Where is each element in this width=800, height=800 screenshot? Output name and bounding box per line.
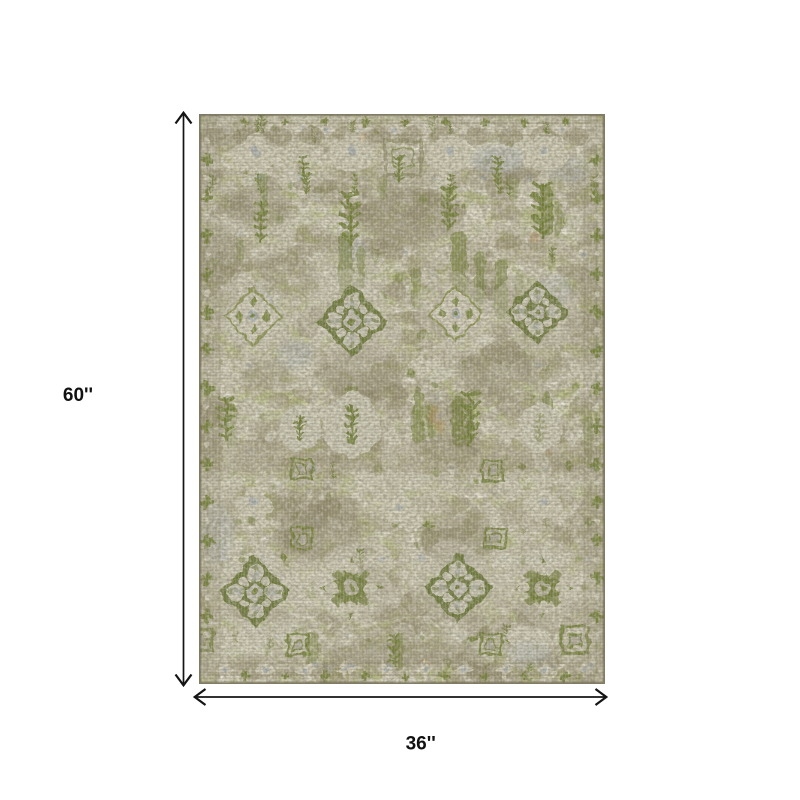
- svg-text:60'': 60'': [63, 385, 93, 406]
- svg-text:36'': 36'': [406, 734, 436, 755]
